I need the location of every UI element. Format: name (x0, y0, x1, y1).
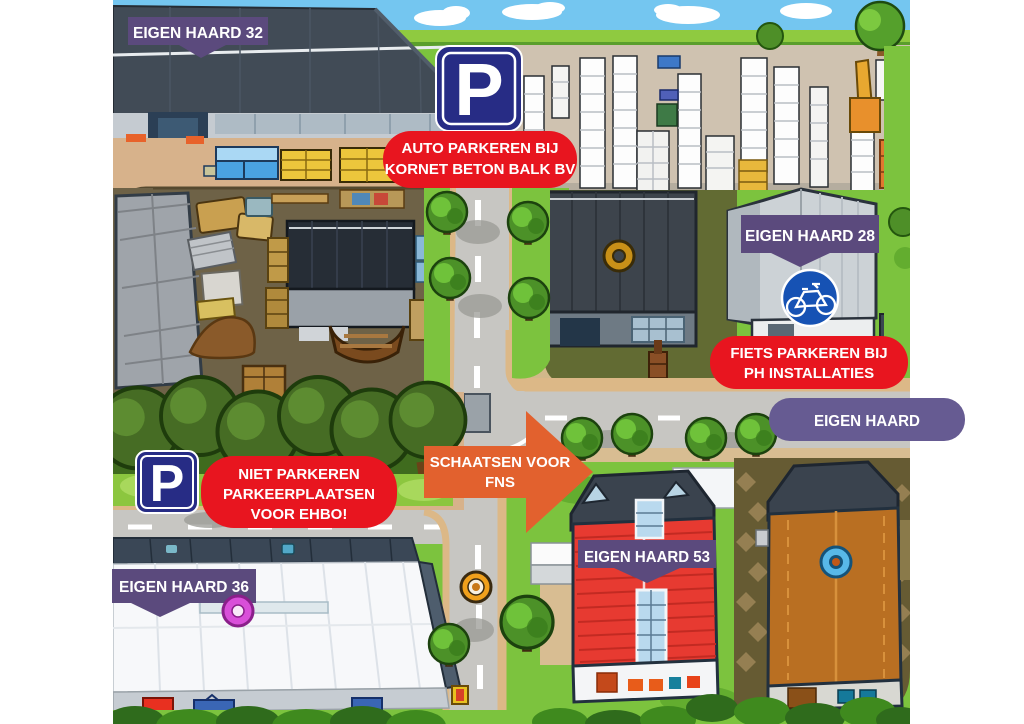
svg-text:VOOR EHBO!: VOOR EHBO! (251, 506, 348, 523)
svg-text:EIGEN HAARD 32: EIGEN HAARD 32 (133, 25, 263, 42)
svg-text:P: P (454, 48, 503, 131)
svg-text:KORNET BETON BALK BV: KORNET BETON BALK BV (385, 161, 576, 178)
svg-text:AUTO PARKEREN BIJ: AUTO PARKEREN BIJ (402, 140, 559, 157)
svg-text:NIET PARKEREN: NIET PARKEREN (238, 466, 359, 483)
svg-text:EIGEN HAARD 36: EIGEN HAARD 36 (119, 579, 249, 596)
svg-text:PH INSTALLATIES: PH INSTALLATIES (744, 365, 874, 382)
svg-text:EIGEN HAARD: EIGEN HAARD (814, 413, 920, 430)
svg-text:FIETS PARKEREN BIJ: FIETS PARKEREN BIJ (730, 345, 887, 362)
svg-text:P: P (150, 455, 185, 513)
svg-text:EIGEN HAARD 53: EIGEN HAARD 53 (584, 549, 710, 566)
svg-text:SCHAATSEN VOOR: SCHAATSEN VOOR (430, 454, 571, 471)
svg-text:EIGEN HAARD 28: EIGEN HAARD 28 (745, 228, 875, 245)
svg-text:FNS: FNS (485, 474, 515, 491)
svg-text:PARKEERPLAATSEN: PARKEERPLAATSEN (223, 486, 375, 503)
